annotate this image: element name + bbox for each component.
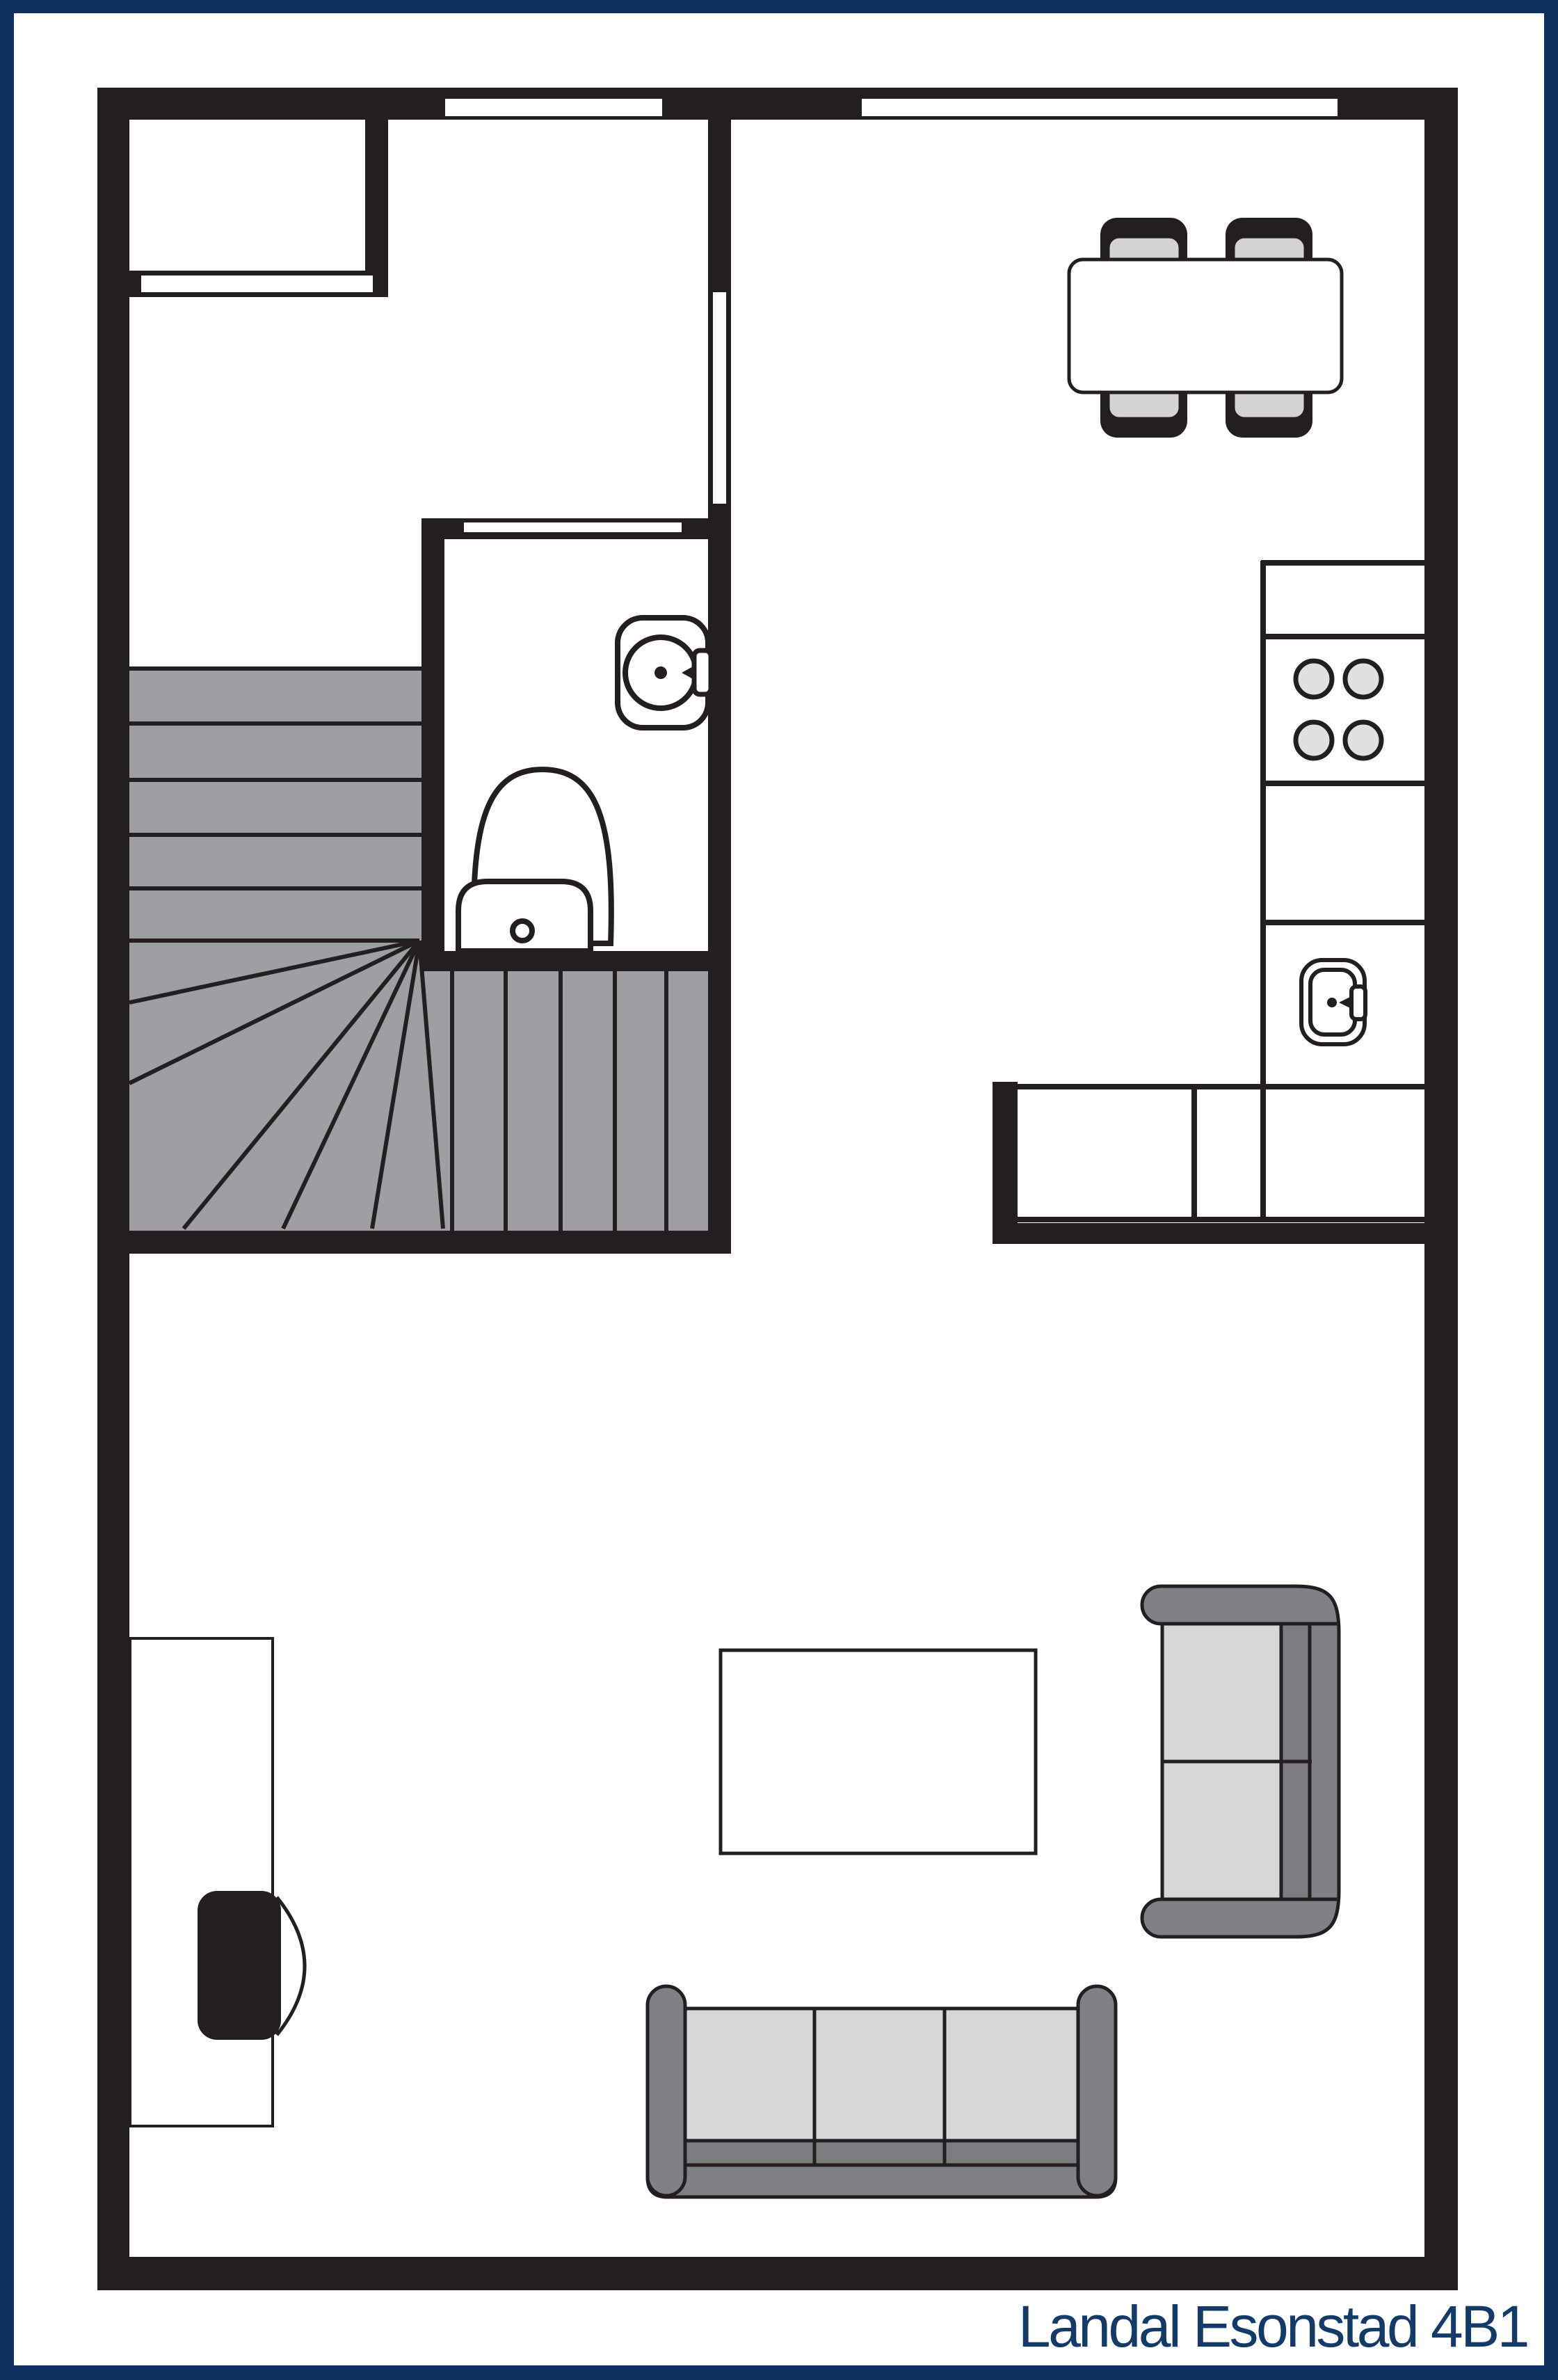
svg-text:Landal Esonstad 4B1: Landal Esonstad 4B1	[1018, 2294, 1527, 2359]
